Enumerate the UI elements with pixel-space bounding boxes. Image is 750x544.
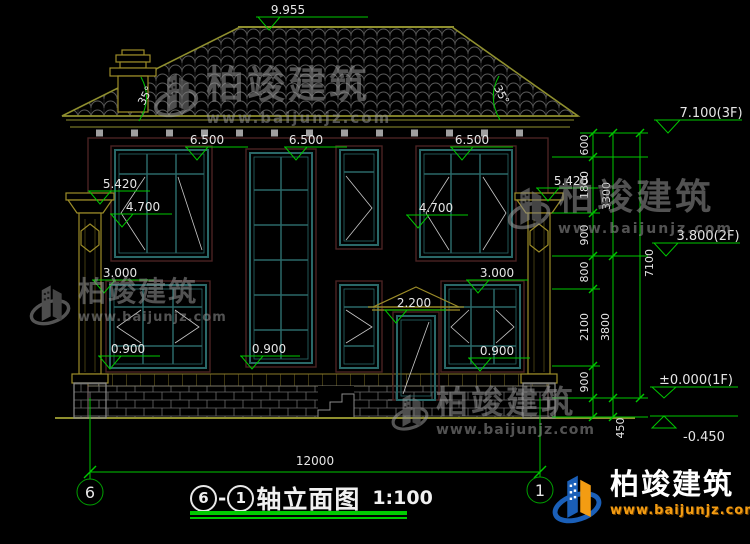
dim-600: 600 xyxy=(578,135,591,156)
brand-logo-icon xyxy=(550,470,604,530)
title-underline-thin xyxy=(190,517,407,519)
window-2f-narrow xyxy=(336,146,382,249)
elevation-5420-left: 5.420 xyxy=(103,177,137,191)
dim-900-b: 900 xyxy=(578,372,591,393)
level-3f: 7.100(3F) xyxy=(679,106,742,121)
elevation-eave-2: 6.500 xyxy=(289,133,323,147)
axis-bubble-1: 1 xyxy=(535,481,545,500)
elevation-0900-left: 0.900 xyxy=(111,342,145,356)
cad-elevation-drawing: 35° 35° xyxy=(0,0,750,544)
title-axis-circle-1: 1 xyxy=(227,485,254,512)
level-2f: 3.800(2F) xyxy=(676,229,739,244)
right-dimension-chain xyxy=(552,129,648,421)
dim-12000: 12000 xyxy=(296,454,334,468)
dim-3300: 3300 xyxy=(600,182,613,210)
title-underline-thick xyxy=(190,511,407,515)
elevation-eave-3: 6.500 xyxy=(455,133,489,147)
title-axis-circle-6: 6 xyxy=(190,485,217,512)
title-dash: - xyxy=(218,486,226,510)
dim-2100: 2100 xyxy=(578,313,591,341)
brand-name: 柏竣建筑 xyxy=(610,470,750,499)
elevation-0900-right: 0.900 xyxy=(480,344,514,358)
elevation-3000-left: 3.000 xyxy=(103,266,137,280)
elevation-0900-stair: 0.900 xyxy=(252,342,286,356)
dim-3800: 3800 xyxy=(599,313,612,341)
dim-800: 800 xyxy=(578,262,591,283)
elevation-4700-right: 4.700 xyxy=(419,201,453,215)
elevation-drawing-canvas: 35° 35° xyxy=(0,0,750,544)
dim-450: 450 xyxy=(614,418,627,439)
brand-url: www.baijunjz.com xyxy=(610,503,750,518)
elevation-4700-left: 4.700 xyxy=(126,200,160,214)
brand-logo: 柏竣建筑 www.baijunjz.com xyxy=(550,470,750,530)
dim-1800: 1800 xyxy=(578,171,591,199)
axis-bubble-6: 6 xyxy=(85,483,95,502)
elevation-2200-door: 2.200 xyxy=(397,296,431,310)
window-1f-narrow xyxy=(336,281,382,372)
elevation-3000-right: 3.000 xyxy=(480,266,514,280)
level-1f: ±0.000(1F) xyxy=(659,373,733,388)
elevation-ridge: 9.955 xyxy=(271,3,305,17)
window-stairwell xyxy=(246,149,316,367)
dim-7100: 7100 xyxy=(643,249,656,277)
elevation-eave-1: 6.500 xyxy=(190,133,224,147)
title-scale: 1:100 xyxy=(372,487,432,509)
window-1f-left xyxy=(106,281,210,372)
level-base: -0.450 xyxy=(683,430,725,445)
dim-900-a: 900 xyxy=(578,225,591,246)
